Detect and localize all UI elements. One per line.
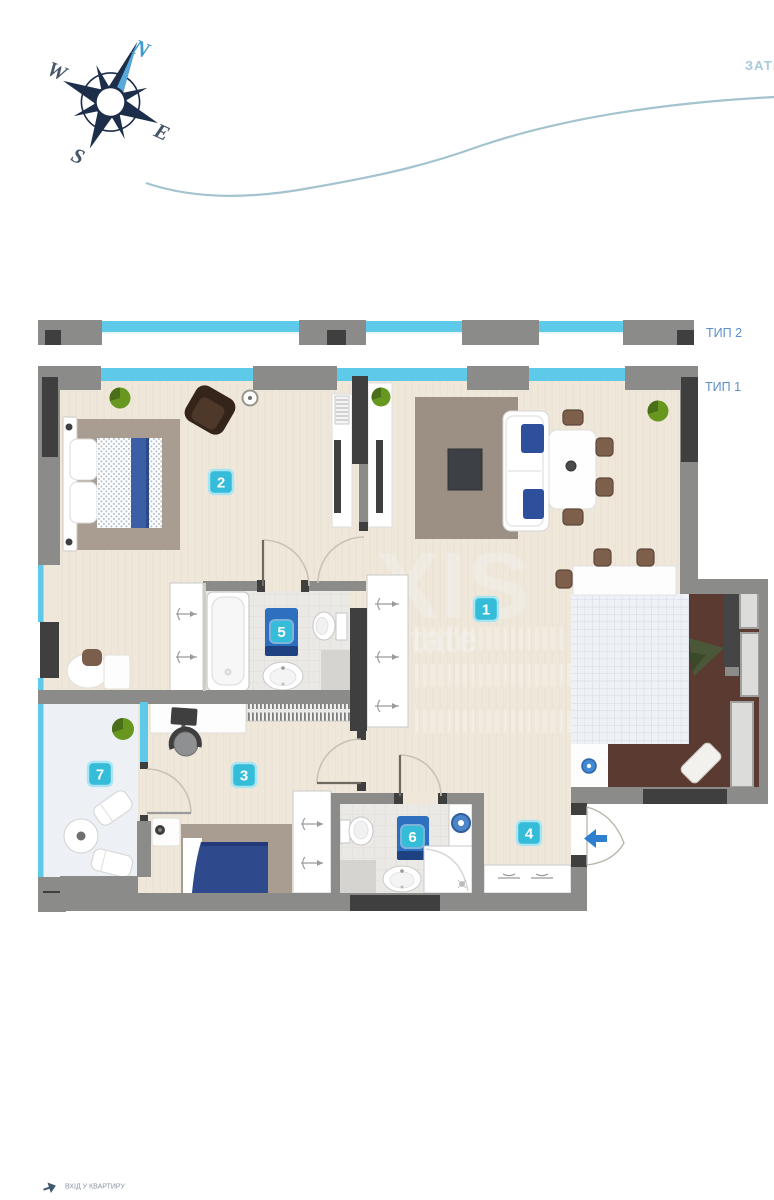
svg-text:tate: tate [410,619,478,661]
svg-text:2: 2 [217,475,225,492]
svg-text:4: 4 [525,826,534,843]
svg-text:1: 1 [482,602,490,619]
svg-text:ЗАТИ: ЗАТИ [745,58,774,73]
svg-text:5: 5 [277,624,285,641]
svg-text:ТИП 1: ТИП 1 [705,380,741,394]
svg-text:3: 3 [240,768,248,785]
svg-text:ТИП 2: ТИП 2 [706,326,742,340]
svg-text:7: 7 [96,767,104,784]
svg-text:6: 6 [408,829,416,846]
svg-text:ВХІД У КВАРТИРУ: ВХІД У КВАРТИРУ [65,1184,125,1191]
